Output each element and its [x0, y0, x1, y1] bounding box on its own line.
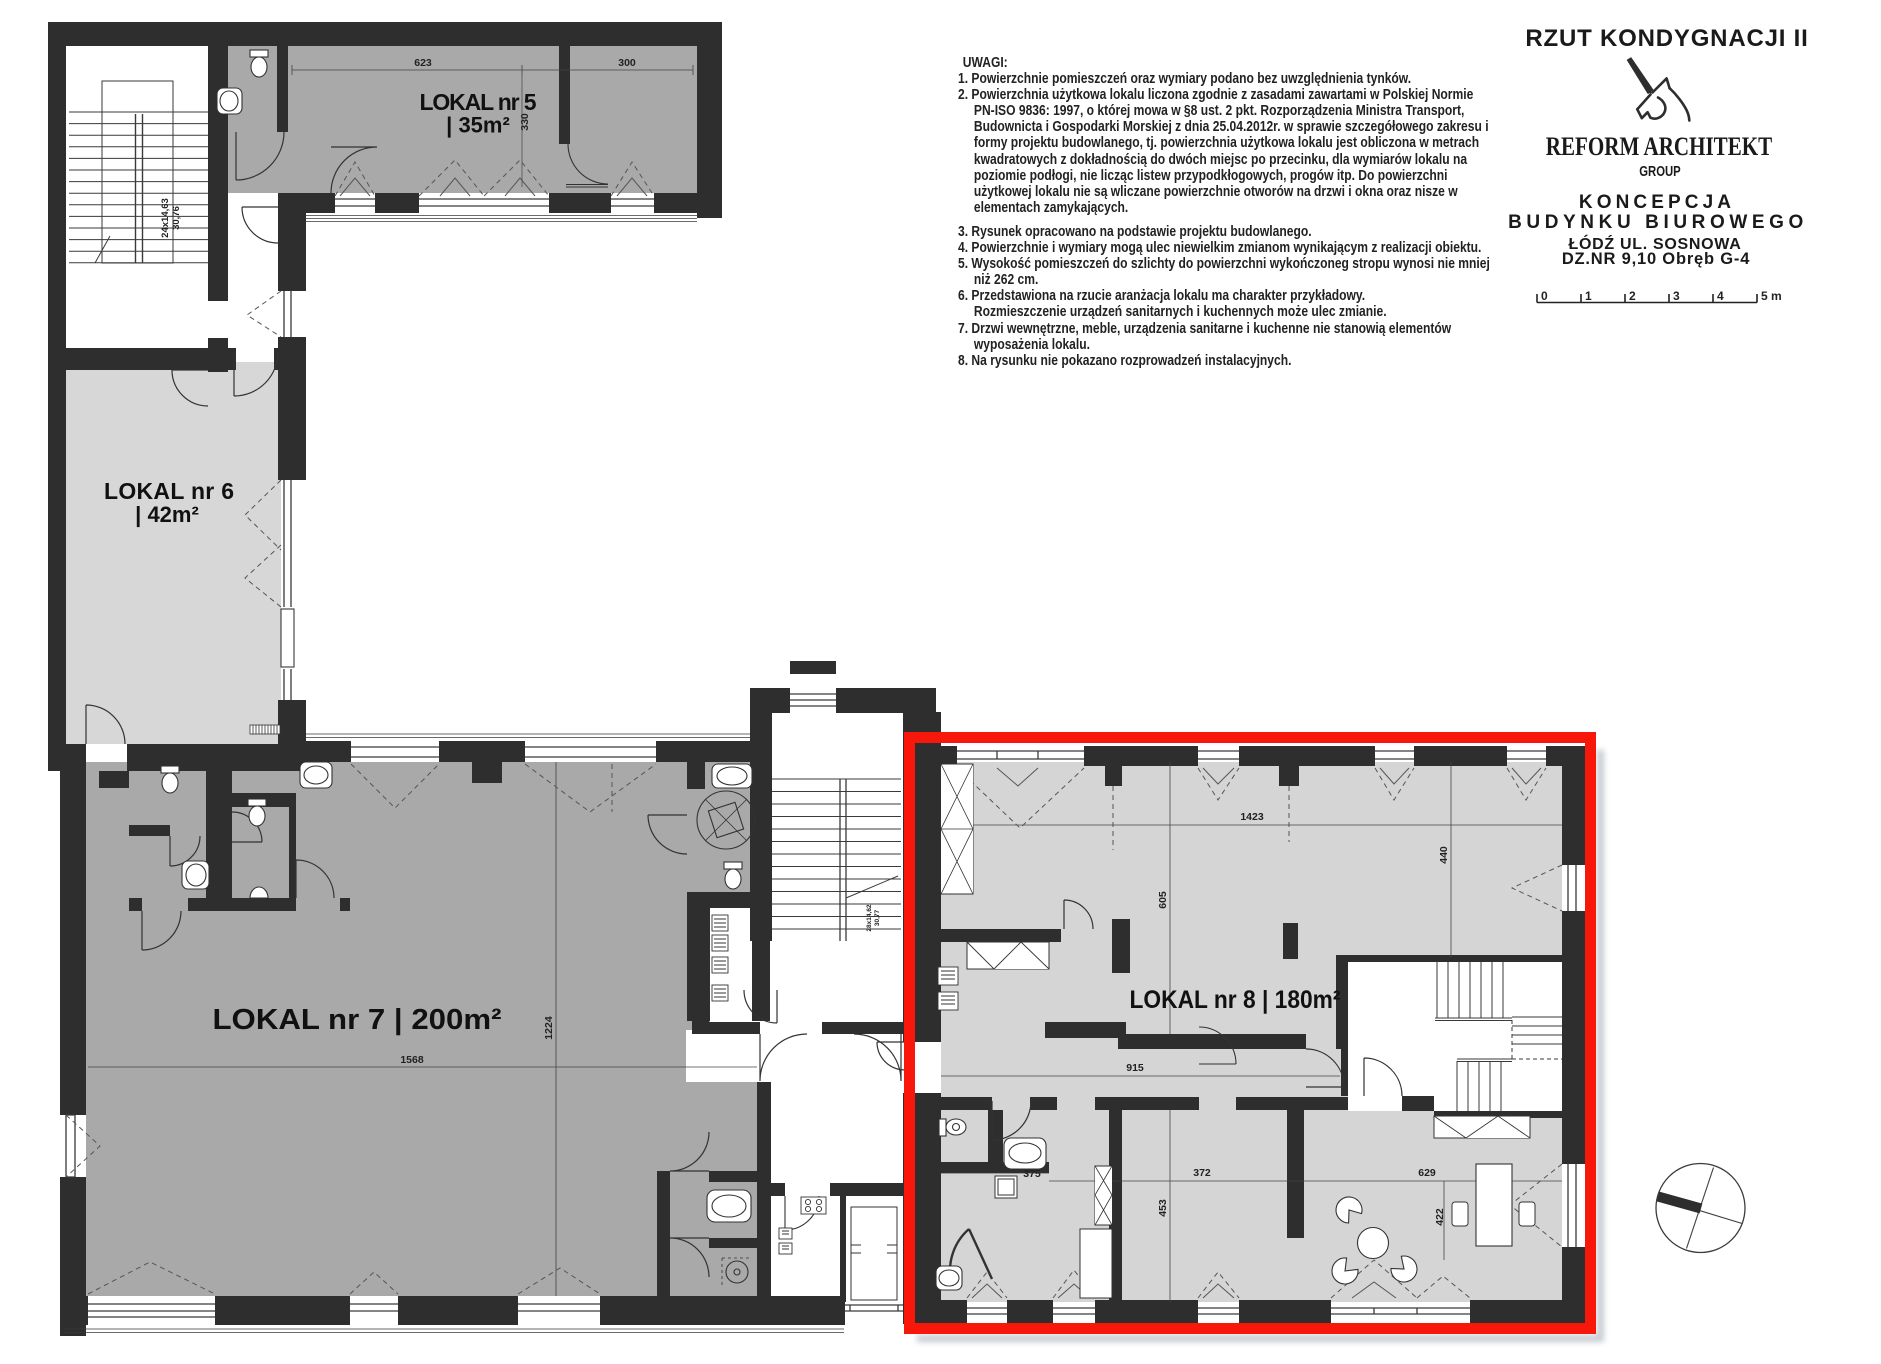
svg-text:0: 0 [1541, 289, 1548, 303]
svg-text:453: 453 [1157, 1199, 1169, 1217]
svg-text:300: 300 [618, 57, 636, 69]
svg-text:915: 915 [1126, 1062, 1144, 1074]
svg-text:LOKAL nr 8 | 180m²: LOKAL nr 8 | 180m² [1130, 986, 1341, 1014]
svg-text:629: 629 [1418, 1167, 1436, 1179]
svg-text:422: 422 [1434, 1208, 1446, 1226]
svg-text:LOKAL nr 6: LOKAL nr 6 [104, 478, 234, 504]
svg-text:1: 1 [1585, 289, 1592, 303]
svg-text:2: 2 [1629, 289, 1636, 303]
svg-text:330: 330 [519, 113, 531, 131]
svg-text:605: 605 [1157, 891, 1169, 909]
svg-text:30,76: 30,76 [171, 206, 182, 230]
svg-text:440: 440 [1438, 846, 1450, 864]
svg-text:| 42m²: | 42m² [135, 502, 199, 527]
svg-text:3: 3 [1673, 289, 1680, 303]
svg-text:372: 372 [1193, 1167, 1211, 1179]
svg-text:1568: 1568 [400, 1054, 424, 1066]
svg-text:375: 375 [1023, 1168, 1041, 1180]
svg-text:623: 623 [414, 57, 432, 69]
svg-text:5 m: 5 m [1761, 289, 1782, 303]
svg-text:4: 4 [1717, 289, 1724, 303]
svg-text:LOKAL nr 5: LOKAL nr 5 [420, 89, 537, 115]
svg-text:LOKAL nr 7 | 200m²: LOKAL nr 7 | 200m² [213, 1004, 502, 1036]
svg-text:24x14,63: 24x14,63 [160, 198, 171, 238]
svg-text:1224: 1224 [543, 1016, 555, 1040]
svg-text:30,77: 30,77 [874, 909, 881, 926]
svg-text:1423: 1423 [1240, 811, 1264, 823]
svg-text:| 35m²: | 35m² [446, 113, 510, 138]
svg-text:28x14,62: 28x14,62 [866, 904, 873, 931]
